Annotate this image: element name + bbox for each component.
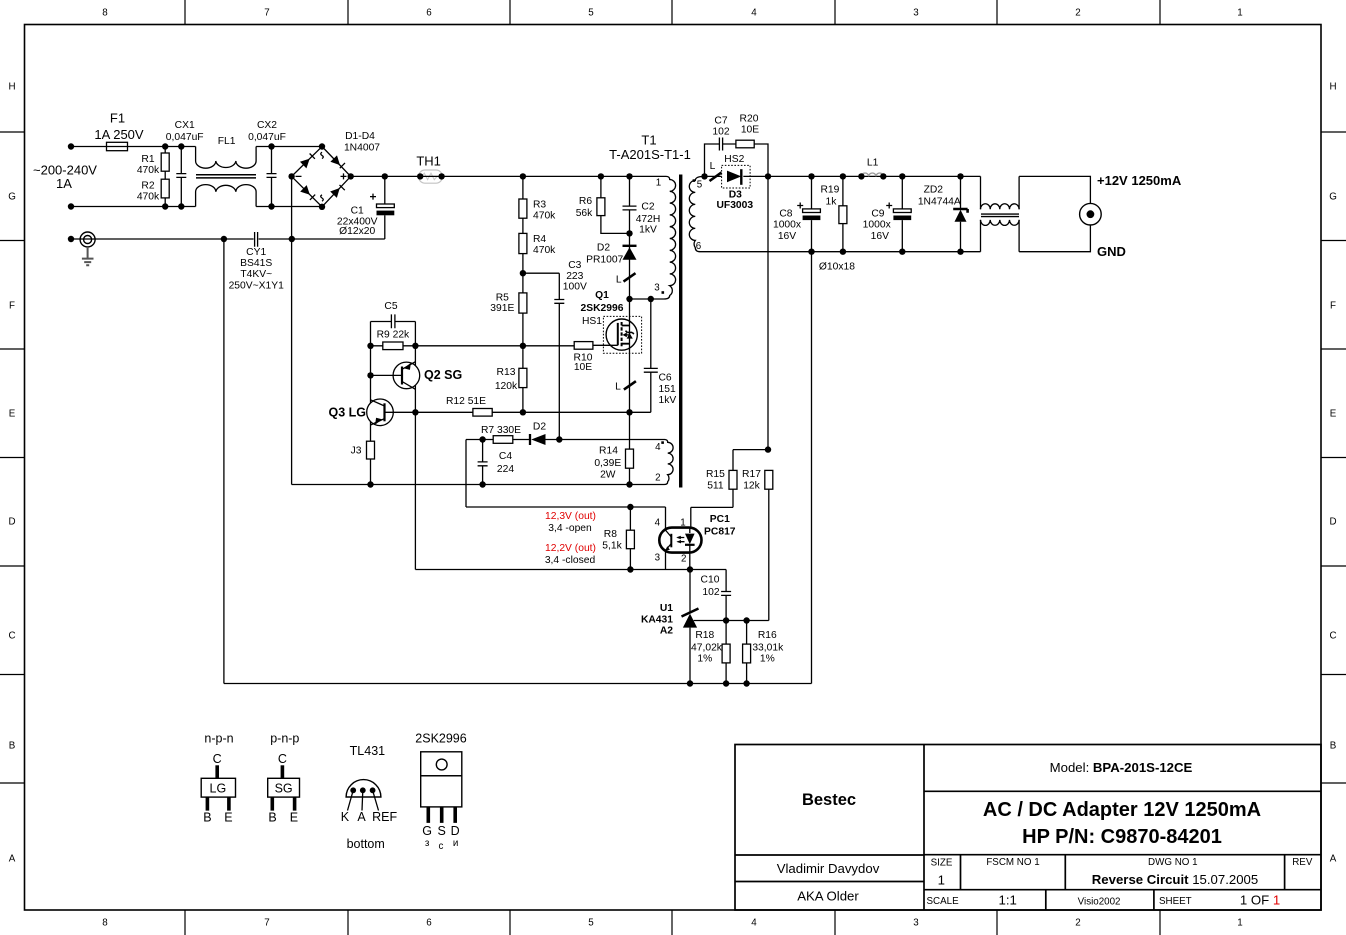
svg-text:C10: C10 [701,575,720,586]
svg-text:2: 2 [681,554,686,565]
svg-text:U1: U1 [660,603,673,614]
svg-text:4: 4 [751,8,757,19]
svg-text:C: C [1329,631,1336,642]
svg-text:100V: 100V [563,282,587,293]
svg-text:0,047uF: 0,047uF [166,132,204,143]
svg-text:K: K [341,810,350,824]
svg-text:BS41S: BS41S [240,258,272,269]
svg-text:bottom: bottom [347,837,385,851]
svg-text:Q1: Q1 [595,290,609,301]
svg-text:с: с [439,841,444,852]
svg-text:G: G [1329,192,1337,203]
svg-text:120k: 120k [495,381,518,392]
svg-text:AKA Older: AKA Older [797,888,859,903]
svg-text:R13: R13 [497,367,516,378]
svg-text:8: 8 [102,8,108,19]
svg-text:D2: D2 [597,243,610,254]
svg-text:1:1: 1:1 [999,893,1017,908]
svg-text:з: з [425,838,430,849]
svg-text:2W: 2W [600,470,616,481]
svg-text:HS2: HS2 [724,154,744,165]
svg-text:D1-D4: D1-D4 [345,131,375,142]
svg-text:10E: 10E [741,124,759,135]
svg-text:511: 511 [707,480,724,491]
svg-text:1N4744A: 1N4744A [918,196,961,207]
svg-text:+12V 1250mA: +12V 1250mA [1097,173,1182,188]
svg-text:T4KV~: T4KV~ [240,269,272,280]
svg-text:Ø10x18: Ø10x18 [819,261,855,272]
svg-text:224: 224 [497,464,514,475]
svg-text:D: D [1329,517,1336,528]
svg-text:1000x: 1000x [773,220,802,231]
svg-text:16V: 16V [778,231,796,242]
svg-text:1: 1 [1237,918,1242,929]
svg-text:Model: BPA-201S-12CE: Model: BPA-201S-12CE [1050,760,1193,775]
svg-text:L: L [616,275,622,286]
svg-text:E: E [9,409,16,420]
svg-text:GND: GND [1097,244,1126,259]
svg-text:B: B [268,811,276,825]
svg-text:1kV: 1kV [659,395,677,406]
svg-text:2SK2996: 2SK2996 [415,732,466,746]
svg-text:SHEET: SHEET [1159,896,1192,907]
svg-text:1N4007: 1N4007 [344,143,380,154]
svg-text:HS1: HS1 [582,316,602,327]
svg-text:2SK2996: 2SK2996 [581,303,624,314]
svg-text:B: B [9,741,16,752]
svg-text:SCALE: SCALE [927,896,960,907]
svg-text:6: 6 [426,8,432,19]
svg-text:470k: 470k [533,210,556,221]
svg-text:R1: R1 [141,154,154,165]
svg-text:R20: R20 [740,114,759,125]
svg-text:T-A201S-T1-1: T-A201S-T1-1 [609,147,691,162]
svg-text:R7 330E: R7 330E [481,425,521,436]
svg-text:A: A [357,810,366,824]
svg-text:47,02k: 47,02k [691,643,723,654]
svg-text:2: 2 [655,473,660,484]
svg-text:5: 5 [588,918,594,929]
svg-text:R6: R6 [579,196,592,207]
svg-text:S: S [438,824,446,838]
svg-text:0,047uF: 0,047uF [248,132,286,143]
svg-text:R5: R5 [496,292,509,303]
svg-text:1A 250V: 1A 250V [94,127,143,142]
svg-text:T1: T1 [641,133,656,148]
svg-text:4: 4 [655,517,661,528]
svg-text:J3: J3 [351,445,362,456]
svg-text:REV: REV [1292,857,1313,868]
svg-text:10E: 10E [574,362,592,373]
svg-text:PR1007: PR1007 [586,255,623,266]
svg-text:250V~X1Y1: 250V~X1Y1 [229,280,285,291]
svg-text:16V: 16V [871,231,889,242]
svg-text:CX2: CX2 [257,120,277,131]
svg-text:3,4 -closed: 3,4 -closed [545,555,596,566]
svg-text:391E: 391E [490,303,514,314]
svg-text:F: F [9,301,15,312]
svg-text:5: 5 [588,8,594,19]
svg-text:LG: LG [210,781,227,795]
svg-text:102: 102 [702,587,719,598]
svg-text:5,1k: 5,1k [602,541,622,552]
svg-text:R18: R18 [695,630,714,641]
svg-text:KA431: KA431 [641,615,673,626]
svg-text:E: E [224,811,232,825]
svg-text:A: A [9,854,16,865]
svg-text:C: C [8,631,15,642]
svg-text:3: 3 [913,918,919,929]
svg-text:A: A [1330,854,1337,865]
svg-text:G: G [8,192,16,203]
svg-text:DWG NO 1: DWG NO 1 [1148,857,1198,868]
svg-text:R12 51E: R12 51E [446,396,486,407]
svg-text:3: 3 [655,552,661,563]
svg-text:G: G [422,824,432,838]
svg-text:C7: C7 [714,116,727,127]
svg-text:1: 1 [1237,8,1242,19]
svg-text:E: E [290,811,298,825]
svg-text:470k: 470k [137,165,160,176]
svg-text:F: F [1330,301,1336,312]
svg-text:33,01k: 33,01k [752,643,784,654]
svg-text:151: 151 [659,384,676,395]
svg-text:2: 2 [1075,8,1080,19]
svg-text:3: 3 [654,283,660,294]
svg-text:Ø12x20: Ø12x20 [339,226,375,237]
svg-text:C9: C9 [871,208,884,219]
svg-text:PC1: PC1 [710,514,730,525]
svg-text:HP P/N: C9870-84201: HP P/N: C9870-84201 [1022,826,1222,848]
svg-text:B: B [1330,741,1337,752]
svg-text:C1: C1 [351,205,364,216]
svg-text:C8: C8 [779,208,792,219]
svg-text:1 OF 1: 1 OF 1 [1240,893,1280,908]
svg-text:B: B [203,811,211,825]
svg-text:n-p-n: n-p-n [204,732,233,746]
svg-text:R19: R19 [820,185,839,196]
svg-text:CY1: CY1 [246,247,266,258]
svg-text:C: C [278,752,287,766]
svg-text:12,3V (out): 12,3V (out) [545,511,596,522]
svg-text:SIZE: SIZE [931,857,953,868]
svg-text:TH1: TH1 [416,153,441,168]
svg-text:R14: R14 [599,445,618,456]
svg-text:R4: R4 [533,234,546,245]
svg-text:1: 1 [680,517,685,528]
svg-text:470k: 470k [137,192,160,203]
svg-text:Bestec: Bestec [802,791,856,809]
svg-text:R8: R8 [604,529,617,540]
svg-text:E: E [1330,409,1337,420]
svg-text:56k: 56k [576,208,593,219]
svg-text:3,4 -open: 3,4 -open [548,523,592,534]
svg-text:FL1: FL1 [218,136,236,147]
svg-text:R2: R2 [141,181,154,192]
svg-text:2: 2 [1075,918,1080,929]
svg-text:C6: C6 [659,373,672,384]
svg-text:4: 4 [751,918,757,929]
svg-text:H: H [8,82,15,93]
svg-text:L: L [615,382,621,393]
svg-text:SG: SG [275,781,293,795]
svg-text:Vladimir Davydov: Vladimir Davydov [777,861,880,876]
svg-text:1k: 1k [826,196,838,207]
svg-text:Visio2002: Visio2002 [1078,896,1121,907]
svg-text:R3: R3 [533,200,546,211]
svg-text:C3: C3 [568,260,581,271]
svg-text:REF: REF [372,810,397,824]
svg-text:0,39E: 0,39E [594,458,621,469]
svg-text:470k: 470k [533,245,556,256]
svg-text:8: 8 [102,918,108,929]
svg-text:TL431: TL431 [350,744,385,758]
svg-text:6: 6 [426,918,432,929]
svg-text:1000x: 1000x [863,220,892,231]
svg-text:Q2 SG: Q2 SG [424,368,462,382]
svg-text:F1: F1 [110,110,125,125]
svg-text:C2: C2 [641,201,654,212]
svg-text:Reverse Circuit 15.07.2005: Reverse Circuit 15.07.2005 [1092,872,1258,887]
svg-text:D: D [451,824,460,838]
svg-text:Q3 LG: Q3 LG [328,405,366,419]
svg-text:CX1: CX1 [175,120,195,131]
svg-text:7: 7 [264,918,269,929]
svg-text:L: L [710,161,716,172]
svg-text:D2: D2 [533,421,546,432]
svg-text:5: 5 [697,180,703,191]
svg-text:R15: R15 [706,469,725,480]
svg-text:R9 22k: R9 22k [377,329,410,340]
svg-text:AC / DC Adapter 12V 1250mA: AC / DC Adapter 12V 1250mA [983,799,1261,821]
svg-text:6: 6 [696,241,702,252]
svg-text:1%: 1% [697,653,712,664]
svg-text:4: 4 [655,442,661,453]
svg-text:1: 1 [656,178,661,189]
svg-text:1%: 1% [760,653,775,664]
svg-text:A2: A2 [660,626,673,637]
svg-text:~200-240V: ~200-240V [33,162,97,177]
svg-text:ZD2: ZD2 [924,185,944,196]
svg-text:R17: R17 [742,469,761,480]
svg-text:L1: L1 [867,157,879,168]
svg-text:223: 223 [566,271,583,282]
svg-text:FSCM NO 1: FSCM NO 1 [986,857,1039,868]
svg-text:7: 7 [264,8,269,19]
svg-text:UF3003: UF3003 [716,200,753,211]
svg-text:PC817: PC817 [704,526,736,537]
svg-text:1kV: 1kV [639,224,657,235]
svg-text:R16: R16 [758,630,777,641]
svg-text:3: 3 [913,8,919,19]
svg-text:C: C [213,752,222,766]
svg-text:D: D [8,517,15,528]
svg-text:1: 1 [938,872,945,887]
svg-text:p-n-p: p-n-p [270,732,299,746]
svg-text:и: и [453,838,458,849]
svg-text:1A: 1A [56,176,72,191]
svg-text:12k: 12k [743,480,760,491]
svg-text:C4: C4 [499,451,512,462]
svg-text:D3: D3 [729,189,742,200]
svg-text:H: H [1329,82,1336,93]
svg-text:12,2V (out): 12,2V (out) [545,543,596,554]
svg-text:102: 102 [712,127,729,138]
svg-text:C5: C5 [384,301,397,312]
